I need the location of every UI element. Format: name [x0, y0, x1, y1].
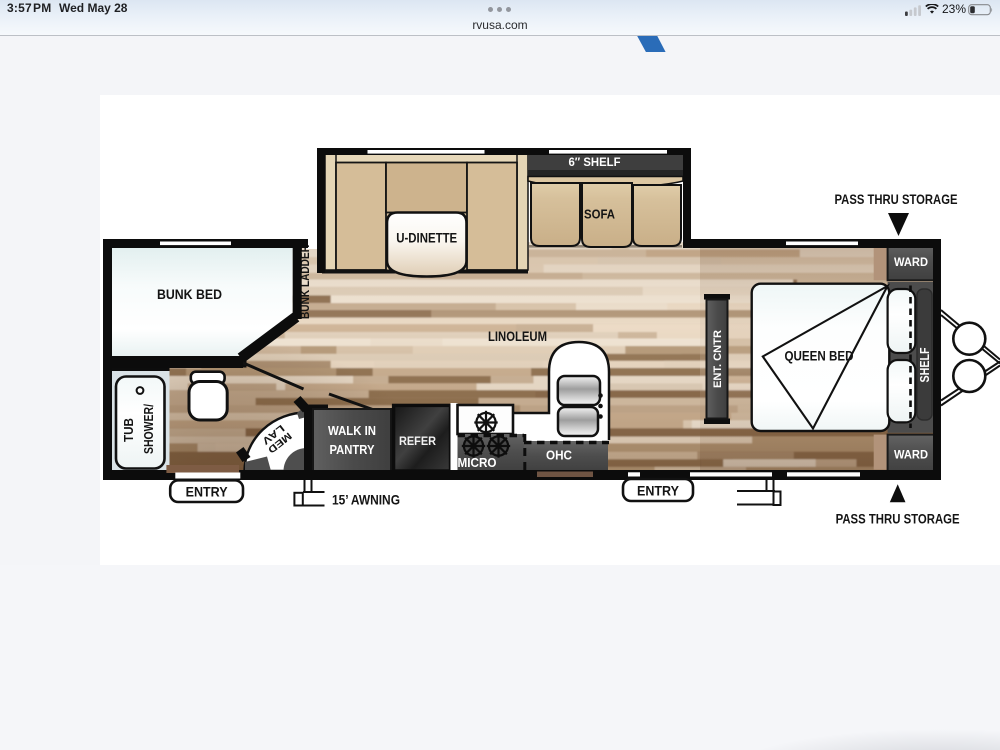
svg-text:SHOWER/: SHOWER/: [142, 404, 156, 454]
svg-text:WALK IN: WALK IN: [328, 424, 376, 438]
svg-text:REFER: REFER: [399, 434, 436, 448]
svg-text:U-DINETTE: U-DINETTE: [396, 231, 457, 246]
svg-text:SHELF: SHELF: [918, 347, 932, 382]
svg-text:BUNK LADDER: BUNK LADDER: [300, 244, 312, 319]
svg-text:ENT. CNTR: ENT. CNTR: [712, 330, 724, 388]
svg-text:OHC: OHC: [546, 448, 573, 463]
svg-text:SOFA: SOFA: [584, 208, 615, 222]
svg-text:QUEEN BED: QUEEN BED: [785, 349, 854, 364]
svg-text:15’ AWNING: 15’ AWNING: [332, 493, 400, 508]
svg-text:6″ SHELF: 6″ SHELF: [569, 155, 621, 169]
svg-text:PASS THRU STORAGE: PASS THRU STORAGE: [835, 192, 958, 207]
svg-text:ENTRY: ENTRY: [637, 482, 680, 498]
svg-text:MICRO: MICRO: [458, 456, 497, 470]
svg-text:TUB: TUB: [122, 418, 136, 442]
svg-text:BUNK BED: BUNK BED: [157, 287, 222, 302]
svg-text:PANTRY: PANTRY: [330, 443, 376, 457]
svg-text:PASS THRU STORAGE: PASS THRU STORAGE: [836, 512, 960, 527]
svg-text:LINOLEUM: LINOLEUM: [488, 329, 547, 344]
svg-text:WARD: WARD: [894, 448, 928, 462]
svg-text:WARD: WARD: [894, 255, 928, 269]
svg-text:ENTRY: ENTRY: [186, 484, 229, 500]
